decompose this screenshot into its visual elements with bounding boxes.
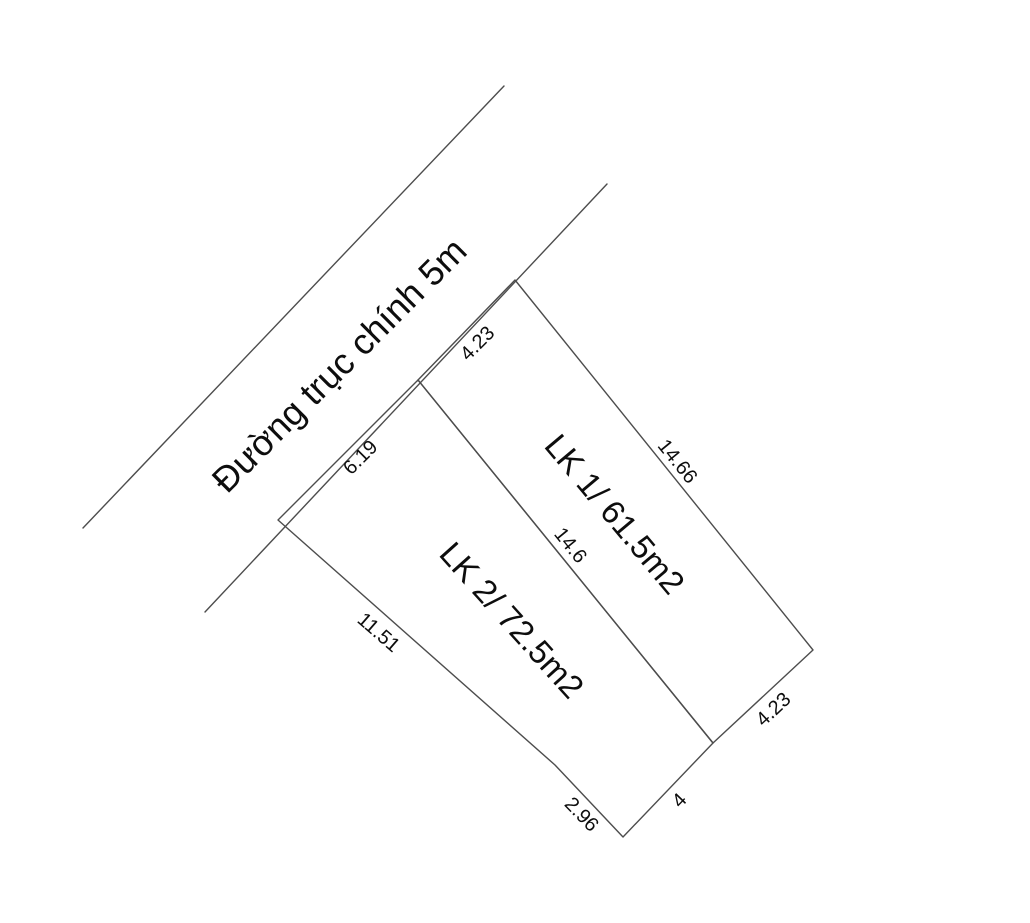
parcel-lk2-label: LK 2/ 72.5m2 [433, 535, 592, 706]
road-frontage-edge-line [205, 184, 607, 612]
dimension-label-lk1-road-frontage: 4.23 [456, 322, 499, 365]
land-survey-diagram: LK 1/ 61.5m2LK 2/ 72.5m24.236.1914.6614.… [0, 0, 1030, 923]
dimension-label-lk1-lk2-shared-side: 14.6 [549, 524, 591, 568]
dimension-label-lk2-bottom-left-side: 2.96 [560, 793, 603, 836]
dimension-label-lk2-road-frontage: 6.19 [339, 436, 382, 479]
dimension-label-lk2-southwest-side: 11.51 [353, 609, 404, 657]
dimension-label-lk2-bottom-side: 4 [668, 789, 692, 812]
diagram-canvas: LK 1/ 61.5m2LK 2/ 72.5m24.236.1914.6614.… [0, 0, 1030, 923]
road-upper-edge-line [83, 86, 504, 528]
dimension-label-lk1-southeast-side: 4.23 [752, 688, 795, 731]
dimension-label-lk1-northeast-side: 14.66 [653, 435, 702, 488]
